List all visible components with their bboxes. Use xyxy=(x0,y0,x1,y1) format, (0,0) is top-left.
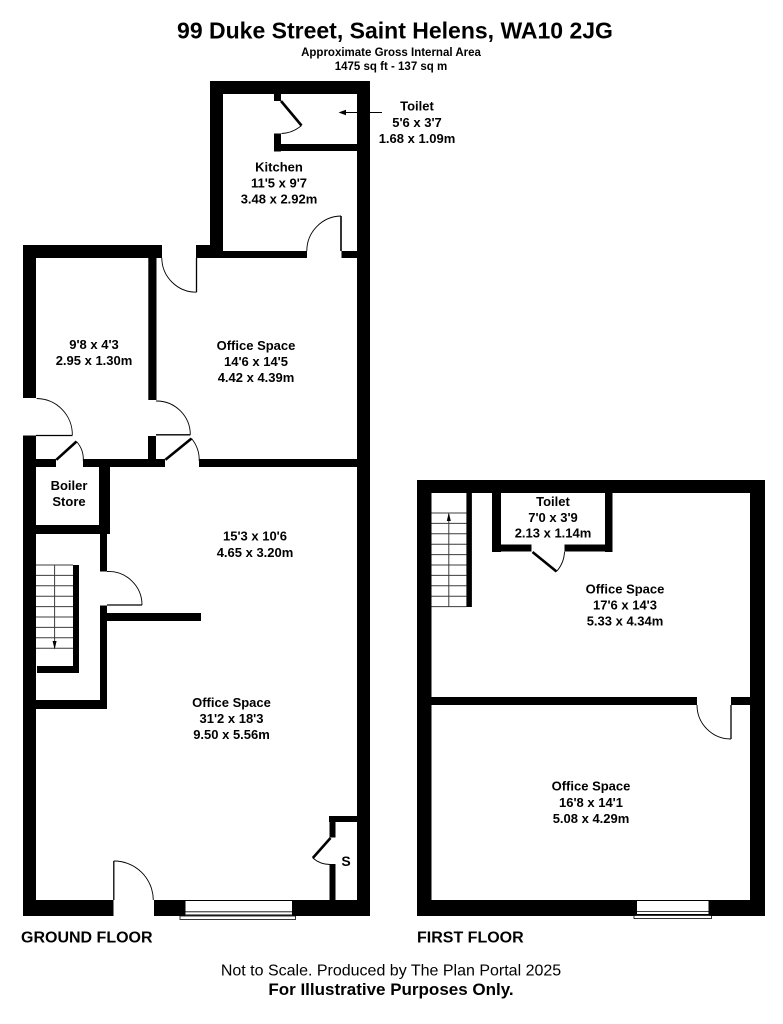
svg-text:5'6 x 3'7: 5'6 x 3'7 xyxy=(392,115,442,130)
svg-text:Office Space: Office Space xyxy=(192,695,271,710)
svg-text:16'8 x 14'1: 16'8 x 14'1 xyxy=(559,795,623,810)
svg-text:Approximate Gross Internal Are: Approximate Gross Internal Area xyxy=(301,47,481,59)
svg-text:Office Space: Office Space xyxy=(552,779,631,794)
svg-text:Toilet: Toilet xyxy=(400,99,434,114)
svg-text:11'5 x 9'7: 11'5 x 9'7 xyxy=(251,176,307,191)
svg-text:3.48 x 2.92m: 3.48 x 2.92m xyxy=(241,192,318,207)
svg-text:15'3 x 10'6: 15'3 x 10'6 xyxy=(223,529,287,544)
svg-text:Office Space: Office Space xyxy=(586,582,665,597)
svg-text:S: S xyxy=(341,853,350,869)
svg-text:Boiler: Boiler xyxy=(51,478,88,493)
svg-text:Toilet: Toilet xyxy=(536,494,570,509)
svg-text:31'2 x 18'3: 31'2 x 18'3 xyxy=(199,711,263,726)
svg-text:Store: Store xyxy=(52,494,85,509)
svg-text:1475 sq ft - 137 sq m: 1475 sq ft - 137 sq m xyxy=(335,61,448,73)
svg-text:17'6 x 14'3: 17'6 x 14'3 xyxy=(593,598,657,613)
svg-text:Office Space: Office Space xyxy=(217,338,296,353)
svg-text:4.65 x 3.20m: 4.65 x 3.20m xyxy=(217,545,294,560)
svg-text:99 Duke Street, Saint Helens,: 99 Duke Street, Saint Helens, WA10 2JG xyxy=(177,18,613,44)
svg-text:14'6 x 14'5: 14'6 x 14'5 xyxy=(224,354,288,369)
svg-text:For Illustrative Purposes Only: For Illustrative Purposes Only. xyxy=(268,980,513,999)
svg-text:9'8 x 4'3: 9'8 x 4'3 xyxy=(69,337,119,352)
svg-text:Not to Scale. Produced by The: Not to Scale. Produced by The Plan Porta… xyxy=(221,963,561,980)
svg-text:7'0 x 3'9: 7'0 x 3'9 xyxy=(528,510,578,525)
svg-text:5.33 x 4.34m: 5.33 x 4.34m xyxy=(587,614,664,629)
svg-text:FIRST FLOOR: FIRST FLOOR xyxy=(417,930,524,947)
svg-text:Kitchen: Kitchen xyxy=(255,160,303,175)
svg-text:2.95 x 1.30m: 2.95 x 1.30m xyxy=(56,353,133,368)
svg-text:4.42 x 4.39m: 4.42 x 4.39m xyxy=(218,370,295,385)
svg-text:2.13 x 1.14m: 2.13 x 1.14m xyxy=(515,526,592,541)
svg-text:9.50 x 5.56m: 9.50 x 5.56m xyxy=(193,727,270,742)
svg-text:5.08 x 4.29m: 5.08 x 4.29m xyxy=(553,811,630,826)
svg-text:GROUND FLOOR: GROUND FLOOR xyxy=(21,930,153,947)
svg-text:1.68 x 1.09m: 1.68 x 1.09m xyxy=(379,131,456,146)
